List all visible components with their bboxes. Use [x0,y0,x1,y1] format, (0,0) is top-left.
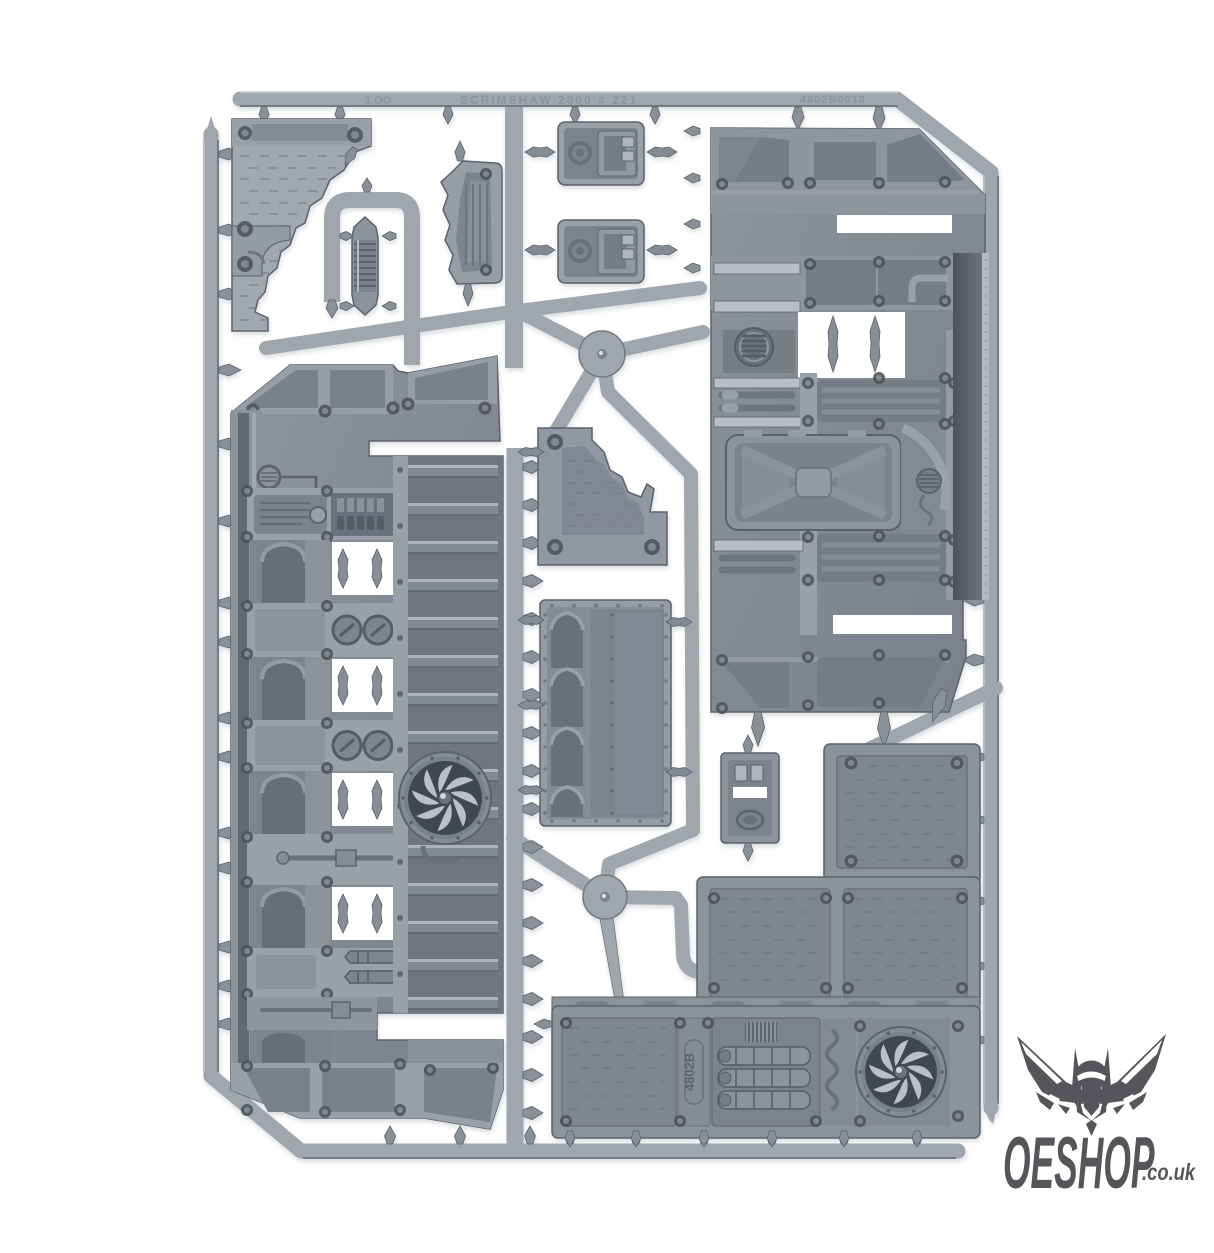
svg-text:4802B: 4802B [682,1053,697,1091]
svg-text:OESHOP: OESHOP [1003,1123,1155,1204]
svg-text:SCRIMSHAW 2000 # 221: SCRIMSHAW 2000 # 221 [460,93,638,107]
svg-text:4802B0010: 4802B0010 [800,94,866,106]
svg-text:.co.uk: .co.uk [1142,1160,1196,1185]
svg-text:1 OO: 1 OO [365,95,392,107]
